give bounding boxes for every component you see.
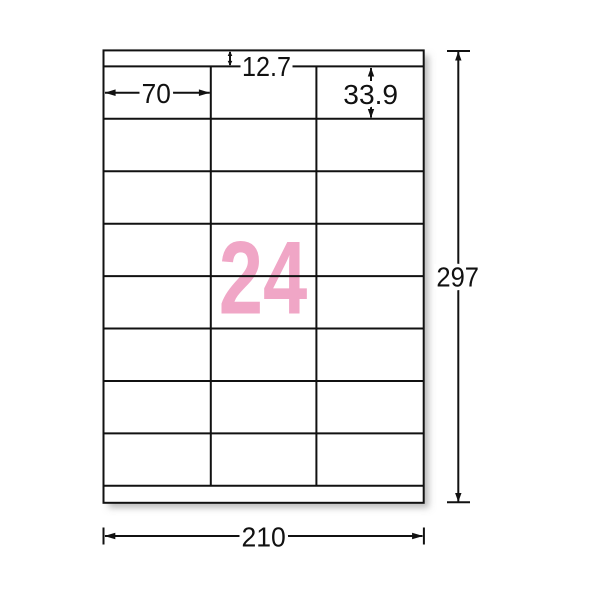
- svg-text:24: 24: [219, 221, 308, 337]
- svg-text:297: 297: [436, 262, 479, 293]
- svg-text:12.7: 12.7: [242, 51, 291, 82]
- svg-text:33.9: 33.9: [343, 79, 398, 110]
- svg-text:210: 210: [241, 521, 285, 552]
- svg-text:70: 70: [142, 78, 171, 109]
